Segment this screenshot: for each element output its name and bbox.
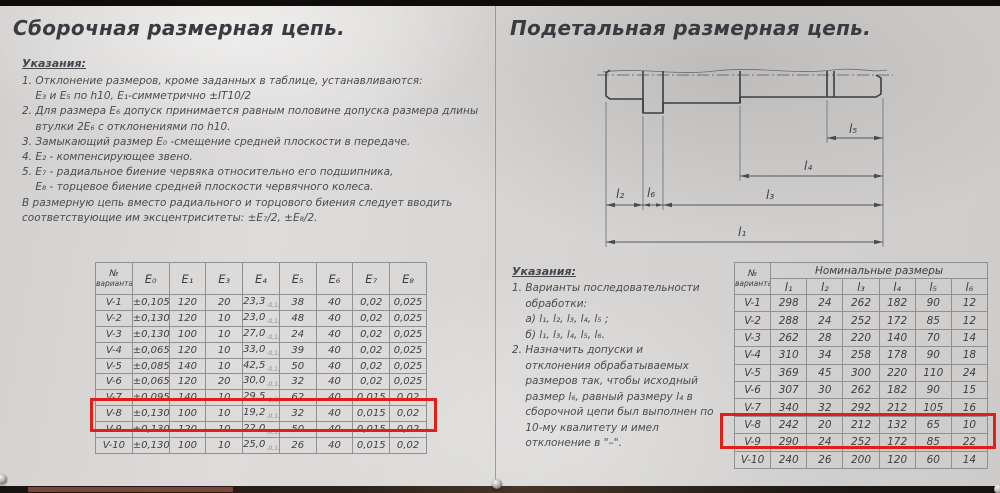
value-cell: 40: [316, 310, 353, 326]
value-cell: 42,5-0,13: [243, 358, 280, 374]
value-cell: 0,015: [353, 438, 390, 454]
value-cell: 100: [169, 326, 206, 342]
dim-label-l5: l₅: [849, 122, 857, 136]
photographed-document: Сборочная размерная цепь. Указания: 1. О…: [0, 0, 1000, 493]
table-row: V-2288242521728512: [735, 312, 988, 329]
col-header: l₅: [915, 279, 951, 295]
col-header: l₁: [771, 279, 807, 295]
table-row: V-2±0,1301201023,0-0,1348400,020,025: [96, 310, 427, 326]
table-row: V-6307302621829015: [735, 381, 988, 398]
shaft-profile: [606, 70, 881, 113]
table-row: V-3±0,1301001027,0-0,1324400,020,025: [96, 326, 427, 342]
value-cell: ±0,085: [132, 358, 169, 374]
value-cell: 48: [279, 310, 316, 326]
value-cell: 10: [206, 358, 243, 374]
right-notes-heading: Указания:: [512, 265, 576, 278]
highlight-box-right-v8: [720, 413, 996, 449]
tolerance-subscript: -0,13: [266, 366, 279, 373]
value-cell: 0,02: [353, 310, 390, 326]
value-cell: 85: [915, 312, 951, 329]
value-cell: ±0,065: [132, 374, 169, 390]
value-cell: 26: [807, 451, 843, 468]
value-cell: 10: [206, 438, 243, 454]
dim-label-l4: l₄: [804, 159, 812, 173]
value-cell: 120: [169, 310, 206, 326]
value-cell: 40: [316, 295, 353, 311]
value-cell: 30: [807, 381, 843, 398]
col-header: E₅: [279, 263, 316, 295]
value-cell: 24: [807, 295, 843, 312]
nominal-table-head: №вариантаНоминальные размерыl₁l₂l₃l₄l₅l₆: [735, 263, 988, 295]
value-cell: 90: [915, 381, 951, 398]
value-cell: 50: [279, 358, 316, 374]
tolerance-subscript: -0,13: [266, 302, 279, 309]
break-line: [603, 69, 887, 72]
value-cell: 10: [206, 326, 243, 342]
dim-label-l1: l₁: [738, 225, 746, 239]
value-cell: 307: [771, 381, 807, 398]
table-row: V-5±0,0851401042,5-0,1350400,020,025: [96, 358, 427, 374]
tolerance-subscript: -0,13: [266, 318, 279, 325]
value-cell: 220: [879, 364, 915, 381]
table-row: V-10±0,1301001025,0-0,1326400,0150,02: [96, 438, 427, 454]
col-header: E₀: [132, 263, 169, 295]
panel-divider: [495, 6, 496, 486]
value-cell: 25,0-0,13: [243, 438, 280, 454]
variant-col-header-line: варианта: [735, 279, 770, 288]
dim-label-l2: l₂: [616, 187, 624, 201]
table-row: V-53694530022011024: [735, 364, 988, 381]
left-title: Сборочная размерная цепь.: [13, 16, 345, 40]
value-cell: 172: [879, 312, 915, 329]
value-cell: 14: [951, 329, 987, 346]
value-cell: 20: [206, 374, 243, 390]
value-cell: 30,0-0,13: [243, 374, 280, 390]
pushpin-left: [0, 474, 7, 484]
value-cell: 140: [879, 329, 915, 346]
value-cell: 39: [279, 342, 316, 358]
table-row: V-4±0,0651201033,0-0,1339400,020,025: [96, 342, 427, 358]
value-cell: 120: [169, 342, 206, 358]
tolerance-subscript: -0,13: [266, 350, 279, 357]
value-cell: 0,025: [390, 295, 427, 311]
variant-col-header-line: варианта: [96, 279, 132, 288]
col-header: l₆: [951, 279, 987, 295]
dim-label-l6: l₆: [647, 186, 655, 200]
value-cell: 0,02: [353, 358, 390, 374]
variant-cell: V-2: [96, 310, 133, 326]
value-cell: 33,0-0,13: [243, 342, 280, 358]
value-cell: 120: [169, 374, 206, 390]
right-notes: 1. Варианты последовательности обработки…: [512, 281, 714, 452]
value-cell: 28: [807, 329, 843, 346]
value-cell: 90: [915, 295, 951, 312]
group-header: Номинальные размеры: [771, 263, 988, 279]
value-cell: ±0,130: [132, 310, 169, 326]
variant-cell: V-4: [735, 347, 771, 364]
value-cell: 23,3-0,13: [243, 295, 280, 311]
value-cell: 20: [206, 295, 243, 311]
value-cell: 45: [807, 364, 843, 381]
variant-cell: V-6: [735, 381, 771, 398]
shaft-drawing: l₅ l₄ l₃ l₂ l₆ l₁: [555, 58, 1000, 258]
table-row: V-3262282201407014: [735, 329, 988, 346]
value-cell: 0,025: [390, 374, 427, 390]
highlight-box-left-v8: [90, 398, 437, 432]
value-cell: ±0,105: [132, 295, 169, 311]
value-cell: 288: [771, 312, 807, 329]
value-cell: 310: [771, 347, 807, 364]
value-cell: 298: [771, 295, 807, 312]
variant-cell: V-5: [96, 358, 133, 374]
tolerance-subscript: -0,13: [266, 334, 279, 341]
tolerance-subscript: -0,13: [266, 445, 279, 452]
value-cell: 24: [951, 364, 987, 381]
header-row: l₁l₂l₃l₄l₅l₆: [735, 279, 988, 295]
pushpin-right: [994, 484, 1000, 493]
pushpin-center: [492, 479, 502, 489]
value-cell: 10: [206, 342, 243, 358]
table-row: V-10240262001206014: [735, 451, 988, 468]
value-cell: 262: [843, 381, 879, 398]
value-cell: ±0,130: [132, 438, 169, 454]
value-cell: 262: [771, 329, 807, 346]
value-cell: 38: [279, 295, 316, 311]
bottom-red-object: [28, 487, 233, 492]
value-cell: 0,025: [390, 342, 427, 358]
value-cell: 252: [843, 312, 879, 329]
variant-cell: V-1: [96, 295, 133, 311]
table-row: V-1±0,1051202023,3-0,1338400,020,025: [96, 295, 427, 311]
variant-cell: V-2: [735, 312, 771, 329]
value-cell: 27,0-0,13: [243, 326, 280, 342]
value-cell: 0,025: [390, 358, 427, 374]
value-cell: 12: [951, 295, 987, 312]
value-cell: 18: [951, 347, 987, 364]
variant-col-header-line: №: [735, 269, 770, 279]
header-row: №вариантаНоминальные размеры: [735, 263, 988, 279]
variant-cell: V-5: [735, 364, 771, 381]
variant-cell: V-3: [96, 326, 133, 342]
col-header: E₃: [206, 263, 243, 295]
value-cell: ±0,130: [132, 326, 169, 342]
variant-cell: V-4: [96, 342, 133, 358]
photo-top-edge: [0, 0, 1000, 6]
value-cell: 0,02: [353, 342, 390, 358]
right-title: Подетальная размерная цепь.: [510, 16, 871, 40]
value-cell: 178: [879, 347, 915, 364]
value-cell: 40: [316, 438, 353, 454]
table-row: V-4310342581789018: [735, 347, 988, 364]
value-cell: 182: [879, 295, 915, 312]
col-header: E₆: [316, 263, 353, 295]
value-cell: 0,025: [390, 310, 427, 326]
value-cell: 100: [169, 438, 206, 454]
assembly-table-head: №вариантаE₀E₁E₃E₄E₅E₆E₇E₈: [96, 263, 427, 295]
value-cell: 10: [206, 310, 243, 326]
dim-label-l3: l₃: [766, 188, 774, 202]
table-row: V-6±0,0651202030,0-0,1332400,020,025: [96, 374, 427, 390]
value-cell: ±0,065: [132, 342, 169, 358]
value-cell: 200: [843, 451, 879, 468]
value-cell: 24: [279, 326, 316, 342]
value-cell: 40: [316, 358, 353, 374]
header-row: №вариантаE₀E₁E₃E₄E₅E₆E₇E₈: [96, 263, 427, 295]
value-cell: 0,02: [353, 326, 390, 342]
value-cell: 32: [279, 374, 316, 390]
col-header: l₂: [807, 279, 843, 295]
value-cell: 60: [915, 451, 951, 468]
left-notes: 1. Отклонение размеров, кроме заданных в…: [22, 74, 478, 226]
value-cell: 220: [843, 329, 879, 346]
value-cell: 0,02: [353, 374, 390, 390]
variant-col-header: №варианта: [735, 263, 771, 295]
variant-cell: V-10: [96, 438, 133, 454]
value-cell: 0,02: [390, 438, 427, 454]
value-cell: 40: [316, 342, 353, 358]
value-cell: 34: [807, 347, 843, 364]
col-header: E₄: [243, 263, 280, 295]
table-row: V-1298242621829012: [735, 295, 988, 312]
value-cell: 300: [843, 364, 879, 381]
value-cell: 140: [169, 358, 206, 374]
variant-cell: V-6: [96, 374, 133, 390]
value-cell: 26: [279, 438, 316, 454]
value-cell: 0,025: [390, 326, 427, 342]
left-notes-heading: Указания:: [22, 57, 86, 70]
value-cell: 262: [843, 295, 879, 312]
value-cell: 120: [169, 295, 206, 311]
value-cell: 70: [915, 329, 951, 346]
value-cell: 182: [879, 381, 915, 398]
value-cell: 12: [951, 312, 987, 329]
variant-col-header-line: №: [96, 269, 132, 279]
value-cell: 240: [771, 451, 807, 468]
variant-cell: V-10: [735, 451, 771, 468]
variant-col-header: №варианта: [96, 263, 133, 295]
value-cell: 40: [316, 326, 353, 342]
value-cell: 15: [951, 381, 987, 398]
value-cell: 0,02: [353, 295, 390, 311]
tolerance-subscript: -0,13: [266, 381, 279, 388]
value-cell: 369: [771, 364, 807, 381]
value-cell: 110: [915, 364, 951, 381]
variant-cell: V-1: [735, 295, 771, 312]
col-header: l₃: [843, 279, 879, 295]
variant-cell: V-3: [735, 329, 771, 346]
col-header: E₁: [169, 263, 206, 295]
value-cell: 120: [879, 451, 915, 468]
value-cell: 258: [843, 347, 879, 364]
value-cell: 23,0-0,13: [243, 310, 280, 326]
col-header: E₇: [353, 263, 390, 295]
value-cell: 40: [316, 374, 353, 390]
col-header: l₄: [879, 279, 915, 295]
value-cell: 90: [915, 347, 951, 364]
value-cell: 24: [807, 312, 843, 329]
value-cell: 14: [951, 451, 987, 468]
col-header: E₈: [390, 263, 427, 295]
